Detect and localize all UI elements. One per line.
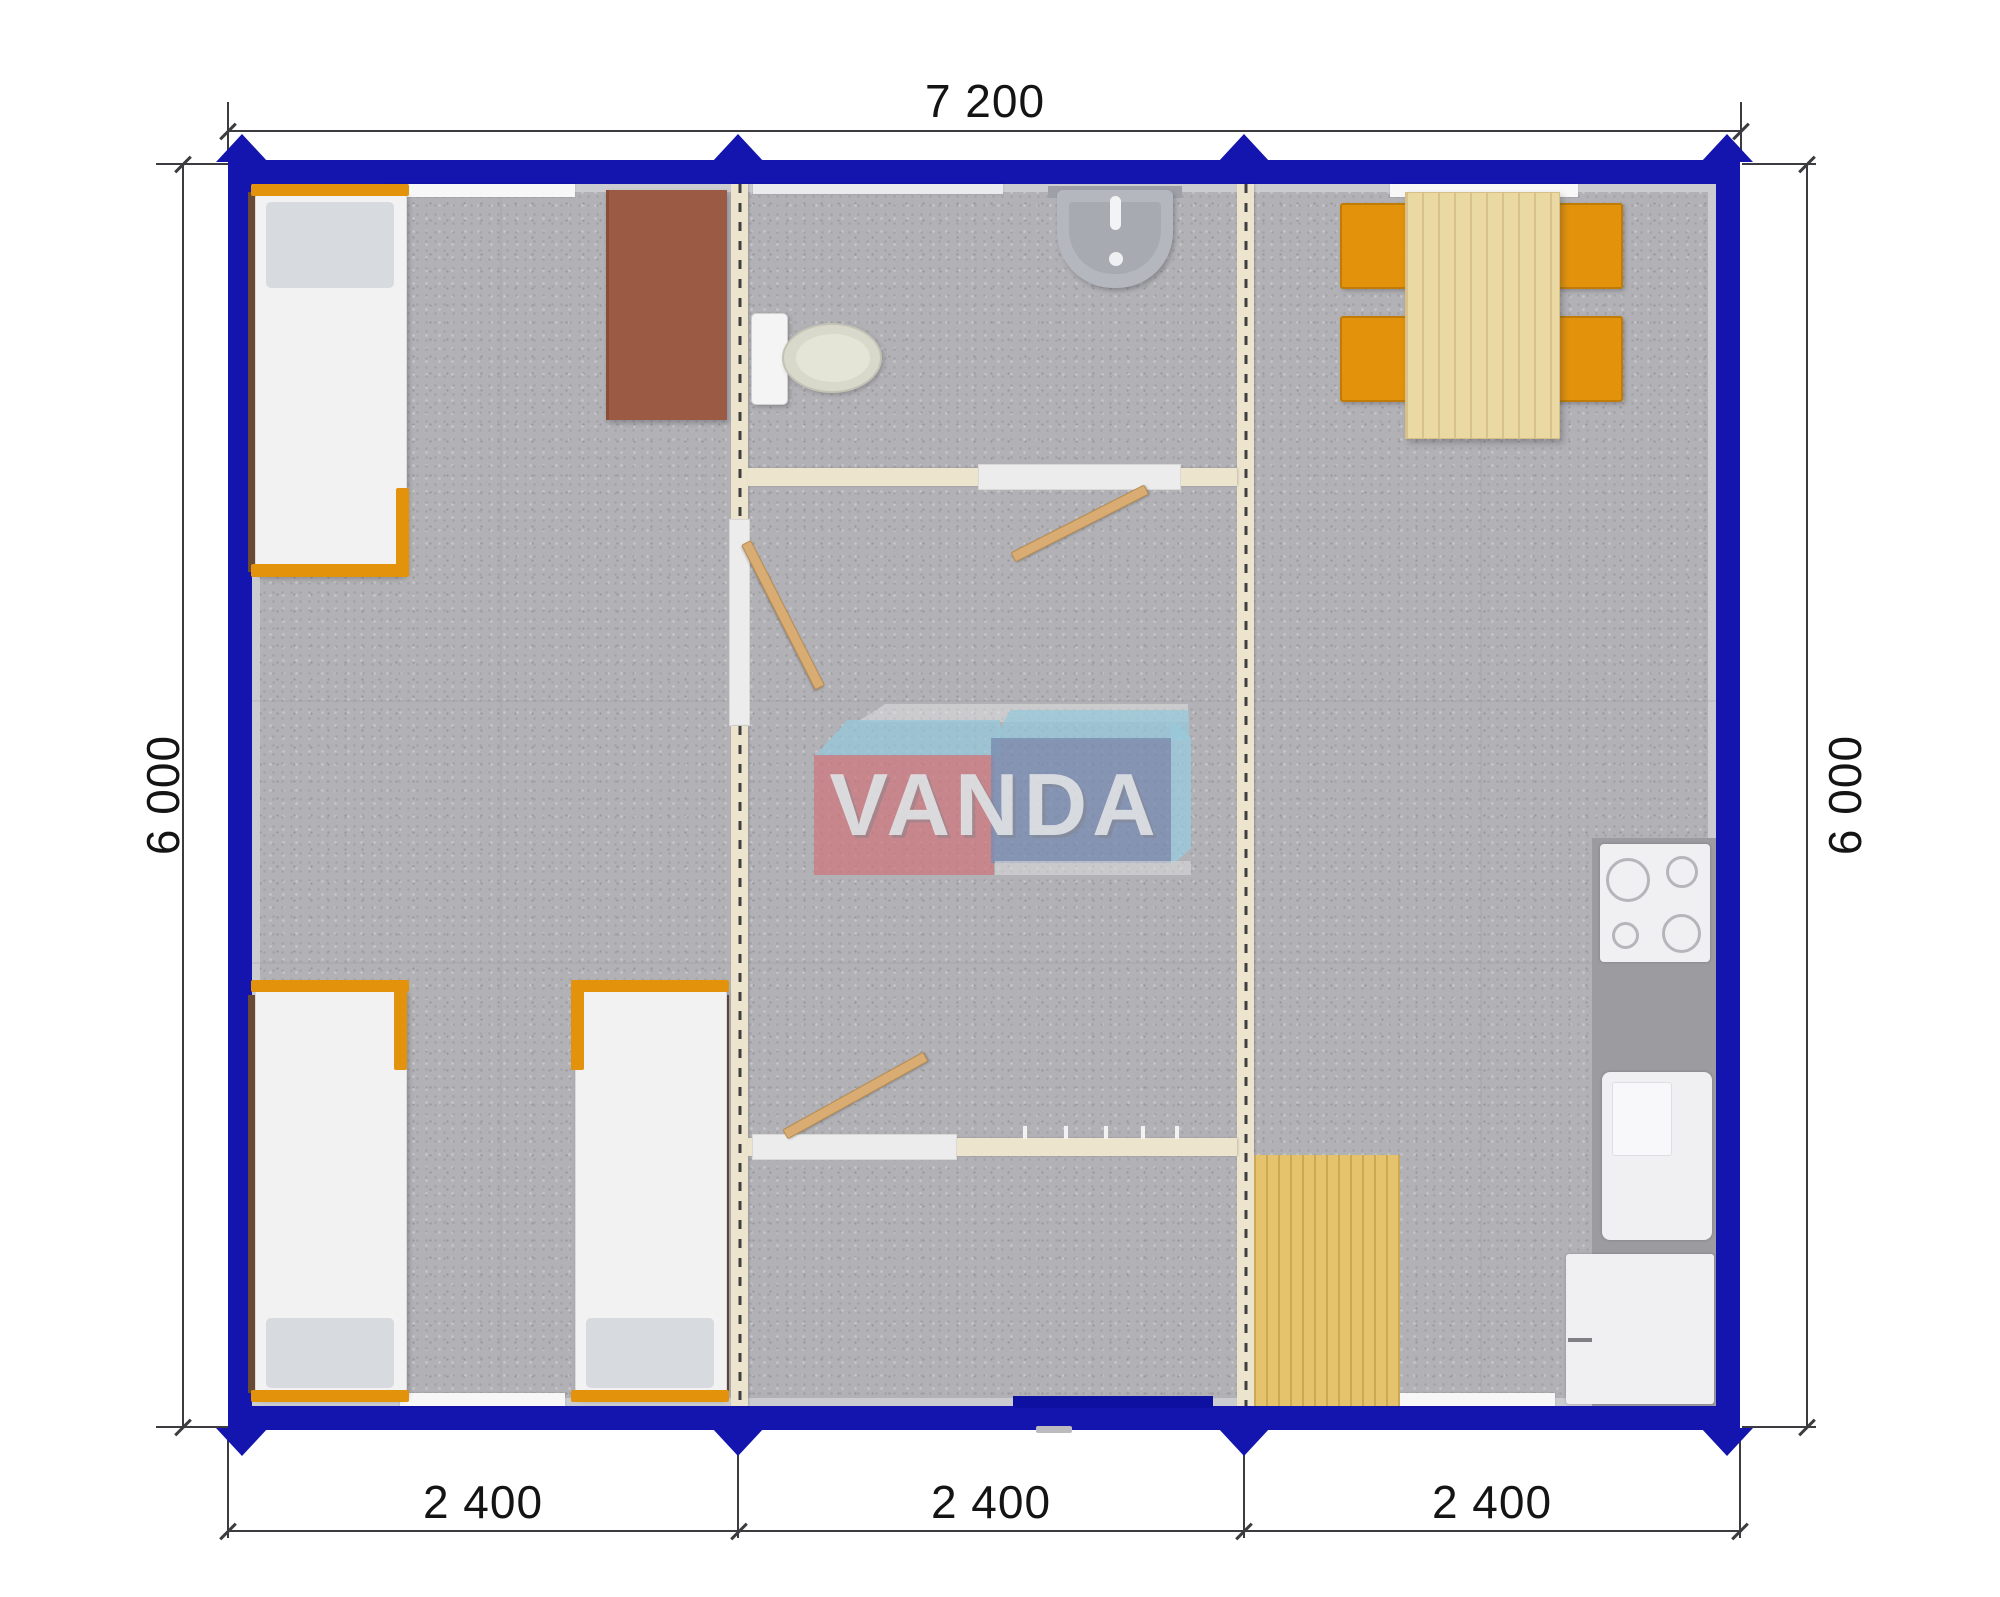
- module-joint-marker: [712, 1428, 764, 1456]
- logo-bottom-shadow: [995, 861, 1191, 875]
- module-joint-marker: [1218, 1428, 1270, 1456]
- door-opening: [978, 464, 1181, 490]
- module-joint-marker: [1701, 134, 1753, 162]
- desk: [606, 190, 727, 420]
- bed-pillow: [586, 1318, 714, 1388]
- bed-rail: [571, 980, 729, 992]
- window: [385, 184, 575, 197]
- wood-floor-mat: [1254, 1155, 1400, 1406]
- wall-stud-mark: [1064, 1126, 1068, 1139]
- bed-rail: [251, 564, 409, 577]
- top-dimension-label: 7 200: [885, 76, 1085, 126]
- window: [400, 1393, 565, 1406]
- burner: [1612, 922, 1639, 949]
- burner: [1666, 856, 1698, 888]
- vanda-logo: VANDA: [800, 698, 1200, 888]
- module-joint-marker: [216, 1428, 268, 1456]
- burner: [1662, 914, 1701, 953]
- carpet-seam: [500, 184, 502, 1406]
- bottom-dimension-line: [228, 1530, 1742, 1532]
- window: [753, 184, 1003, 194]
- cabinet-handle: [1568, 1338, 1592, 1342]
- partition-wall-left: [731, 726, 748, 1406]
- bed-rail: [571, 1390, 729, 1402]
- entry-door-recess: [1013, 1396, 1213, 1408]
- bed-post: [571, 980, 584, 1070]
- bed-pillow: [266, 202, 394, 288]
- kitchen-sink-basin: [1612, 1082, 1672, 1156]
- bed-rail: [251, 1390, 409, 1402]
- burner: [1606, 858, 1650, 902]
- left-extension-top: [156, 163, 230, 165]
- sink-faucet: [1110, 196, 1121, 230]
- toilet-seat: [796, 334, 870, 382]
- wall-stud-mark: [1141, 1126, 1145, 1139]
- bed-post: [394, 980, 407, 1070]
- bed-post: [396, 488, 409, 576]
- logo-blue-top-face: [993, 710, 1189, 740]
- dining-chair: [1340, 203, 1412, 289]
- dining-chair: [1340, 316, 1412, 402]
- left-dimension-label: 6 000: [138, 690, 188, 900]
- partition-wall-right: [1237, 184, 1254, 1406]
- module-joint-marker: [216, 134, 268, 162]
- bed-rail: [251, 184, 409, 196]
- module-joint-marker: [712, 134, 764, 162]
- right-dimension-label: 6 000: [1820, 690, 1870, 900]
- kitchen-cabinet: [1566, 1254, 1714, 1404]
- sink-drain: [1109, 252, 1123, 266]
- partition-wall-left: [731, 184, 748, 519]
- dining-chair: [1551, 316, 1623, 402]
- door-opening: [752, 1134, 957, 1160]
- logo-text: VANDA: [810, 750, 1180, 860]
- entry-step: [1036, 1426, 1072, 1433]
- bottom-dimension-label-3: 2 400: [1392, 1478, 1592, 1526]
- wall-stud-mark: [1104, 1126, 1108, 1139]
- module-joint-marker: [1218, 134, 1270, 162]
- bed-rail: [251, 980, 409, 992]
- dining-chair: [1551, 203, 1623, 289]
- dining-table: [1405, 192, 1560, 439]
- wall-stud-mark: [1175, 1126, 1179, 1139]
- wall-stud-mark: [1023, 1126, 1027, 1139]
- bed-pillow: [266, 1318, 394, 1388]
- floor-plan-canvas: 7 200 6 000 6 000 2 400 2 400 2 400: [0, 0, 2000, 1597]
- right-dimension-line: [1806, 164, 1808, 1427]
- kitchen-sink-unit: [1602, 1072, 1712, 1240]
- module-joint-marker: [1701, 1428, 1753, 1456]
- carpet-seam: [252, 962, 1716, 964]
- top-dimension-line: [228, 130, 1742, 132]
- bottom-dimension-label-1: 2 400: [383, 1478, 583, 1526]
- bottom-dimension-label-2: 2 400: [891, 1478, 1091, 1526]
- window: [1377, 1393, 1555, 1406]
- cooktop: [1600, 844, 1710, 962]
